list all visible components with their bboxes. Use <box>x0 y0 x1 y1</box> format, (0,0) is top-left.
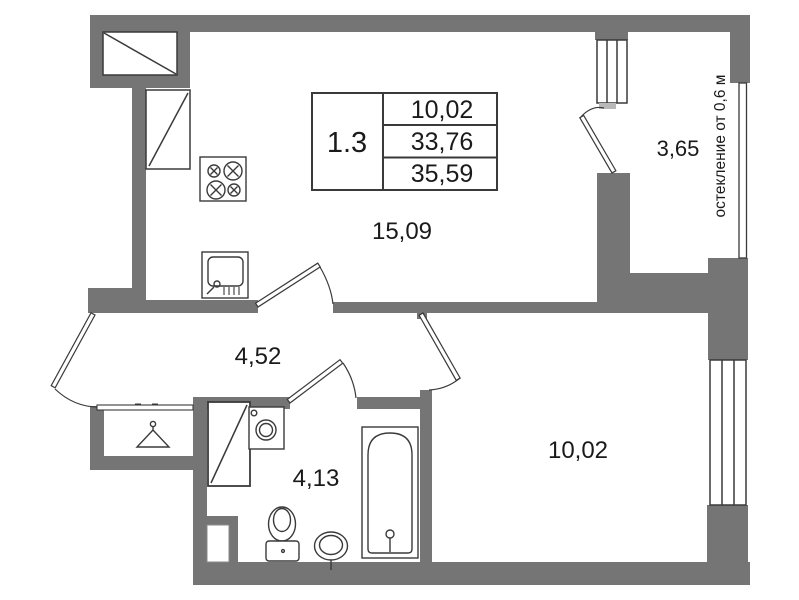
bedroom-door-leaf <box>419 313 460 380</box>
wall-closet-left <box>90 406 104 458</box>
balcony-glazing-line <box>739 83 747 258</box>
vent-shaft-kitchen-symbol <box>146 90 190 169</box>
bathroom-door-arc <box>343 363 356 398</box>
stamp-row-1: 33,76 <box>411 128 474 156</box>
entrance-door-leaf <box>51 313 95 388</box>
bedroom-door <box>419 313 460 390</box>
living-room-door-arc <box>320 267 333 304</box>
entrance-door <box>51 313 98 407</box>
wall-bottom <box>193 562 750 585</box>
wall-niche-opening <box>207 525 229 562</box>
bathtub-symbol <box>362 427 418 558</box>
wall-window-pillar-stub <box>595 32 628 40</box>
wall-vent-box-right <box>177 32 190 75</box>
balcony-door <box>580 107 616 173</box>
toilet-symbol <box>266 507 299 561</box>
wall-niche-right <box>229 525 238 562</box>
wall-hall-top-b <box>333 302 600 313</box>
kitchen-sink-symbol <box>202 252 248 298</box>
bathroom-door <box>287 360 356 403</box>
glazing-note-label: остекление от 0,6 м <box>712 75 729 218</box>
hallway-area-label: 4,52 <box>235 343 282 370</box>
wall-closet-bottom <box>90 456 193 470</box>
wall-balcony-pillar <box>597 173 630 273</box>
wall-entrance-stub <box>88 288 146 313</box>
balcony-area-label: 3,65 <box>657 136 700 161</box>
bathroom-area-label: 4,13 <box>293 465 340 492</box>
wall-bath-left <box>193 397 207 562</box>
stamp-row-0: 10,02 <box>411 96 474 124</box>
bathroom-shaft-symbol <box>208 402 250 486</box>
balcony-door-leaf <box>580 115 616 173</box>
wall-vent-box-bottom <box>90 75 190 88</box>
stove-symbol <box>200 157 246 201</box>
wall-niche-top <box>207 516 238 525</box>
hanger-symbol <box>137 421 169 447</box>
wall-top-right-stub <box>730 32 750 83</box>
living-room-door-leaf <box>256 263 321 307</box>
wall-bath-bedroom <box>420 390 432 563</box>
entrance-door-arc <box>55 389 98 407</box>
closet-front-line <box>97 404 193 410</box>
window-bedroom <box>710 360 746 505</box>
washing-machine-symbol <box>249 407 284 449</box>
wall-right-upper <box>708 258 748 360</box>
wall-top <box>90 15 750 32</box>
vent-shaft-top-symbol <box>103 32 177 75</box>
living-room-door <box>256 263 333 307</box>
stamp-row-2: 35,59 <box>411 160 474 188</box>
window-living-balcony <box>597 40 627 109</box>
floor-plan-drawing: 1.3 10,02 33,76 35,59 15,09 4,52 4,13 10… <box>0 0 799 600</box>
bathroom-door-leaf <box>287 360 342 403</box>
bedroom-area-label: 10,02 <box>548 437 608 464</box>
living-kitchen-area-label: 15,09 <box>372 218 432 245</box>
wall-hall-top-a <box>146 300 258 313</box>
wall-left <box>132 88 146 313</box>
stamp-unit-label: 1.3 <box>327 127 367 159</box>
floor-plan-canvas: 1.3 10,02 33,76 35,59 15,09 4,52 4,13 10… <box>0 0 799 600</box>
